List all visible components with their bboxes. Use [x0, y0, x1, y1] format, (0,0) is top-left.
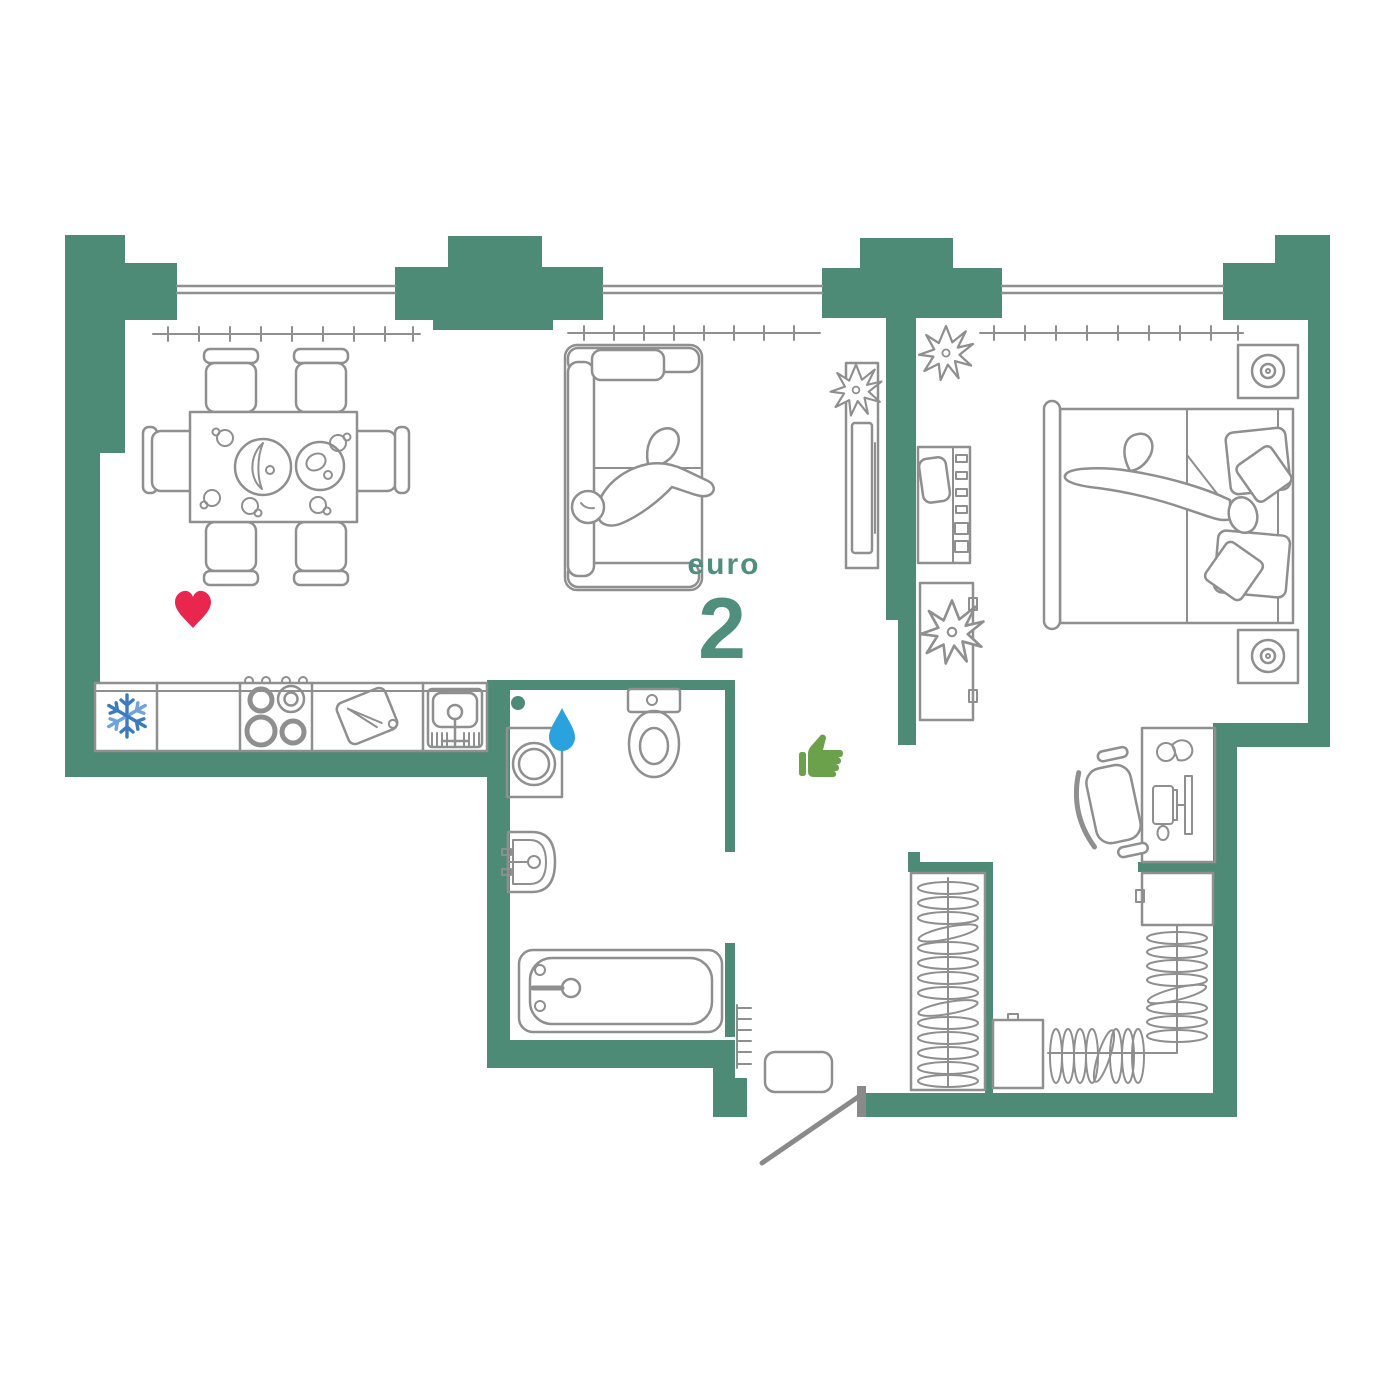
- hangers: [1050, 1028, 1144, 1083]
- label-euro: euro: [687, 548, 760, 581]
- water-drop-icon: [549, 708, 575, 751]
- dining-set: [143, 349, 409, 585]
- nightstand-top: [1238, 345, 1298, 398]
- stool: [918, 456, 951, 503]
- bathroom: [502, 689, 722, 1032]
- desk-lamp: [1157, 740, 1192, 761]
- curtain-rail-kitchen: [153, 327, 420, 341]
- closet: [993, 873, 1213, 1088]
- curtain-rails: [153, 326, 1243, 341]
- floor-plan: euro 2: [0, 0, 1400, 1400]
- bathtub: [519, 950, 722, 1032]
- wall-stub-closet: [1138, 862, 1215, 872]
- curtain-rail-living: [568, 326, 820, 340]
- heart-icon: [175, 591, 211, 628]
- hall-wardrobe: [911, 873, 985, 1090]
- closet-cabinet-top: [1136, 873, 1213, 925]
- wall-bottom: [865, 1093, 1237, 1117]
- window-bedroom: [1002, 286, 1223, 293]
- office-chair: [1067, 746, 1149, 864]
- radiator: [737, 1005, 751, 1068]
- window-living: [603, 286, 822, 293]
- plant-bedroom-window: [919, 326, 973, 380]
- mouse: [1158, 826, 1169, 840]
- dot-icon: [511, 696, 525, 710]
- door-jamb: [857, 1086, 866, 1117]
- double-bed: [1044, 401, 1294, 629]
- doormat: [765, 1052, 832, 1092]
- wall-bathroom-right-lower: [725, 943, 735, 1037]
- entrance-door: [762, 1086, 866, 1163]
- wall-bathroom-top: [487, 680, 735, 690]
- window-glass: [177, 286, 1223, 293]
- wall-bathroom-bottom: [487, 1040, 713, 1068]
- label-number: 2: [698, 581, 746, 677]
- wall-pillar-middle-right-and-divider: [822, 238, 1002, 745]
- curtain-rail-bedroom: [980, 326, 1243, 340]
- keyboard: [1153, 786, 1173, 824]
- thumbs-up-icon: [799, 735, 843, 777]
- window-kitchen: [177, 286, 395, 293]
- closet-cabinet-bottom: [993, 1014, 1043, 1088]
- wall-pillar-middle-left: [395, 236, 603, 330]
- wall-right-bottom: [1213, 747, 1237, 1117]
- makeup-desk: [918, 447, 970, 563]
- wall-bathroom-right-upper: [725, 680, 735, 852]
- wall-kitchen-bottom: [65, 751, 510, 777]
- work-desk: [1142, 728, 1215, 862]
- door-swing: [762, 1095, 861, 1163]
- plant-living: [831, 365, 882, 416]
- nightstand-bottom: [1238, 630, 1298, 683]
- floor-plan-canvas: euro 2: [0, 0, 1400, 1400]
- monitor: [1173, 776, 1192, 834]
- toilet: [628, 689, 680, 777]
- wall-stub-hall-horizontal: [908, 862, 993, 872]
- apartment-label: euro 2: [687, 548, 760, 677]
